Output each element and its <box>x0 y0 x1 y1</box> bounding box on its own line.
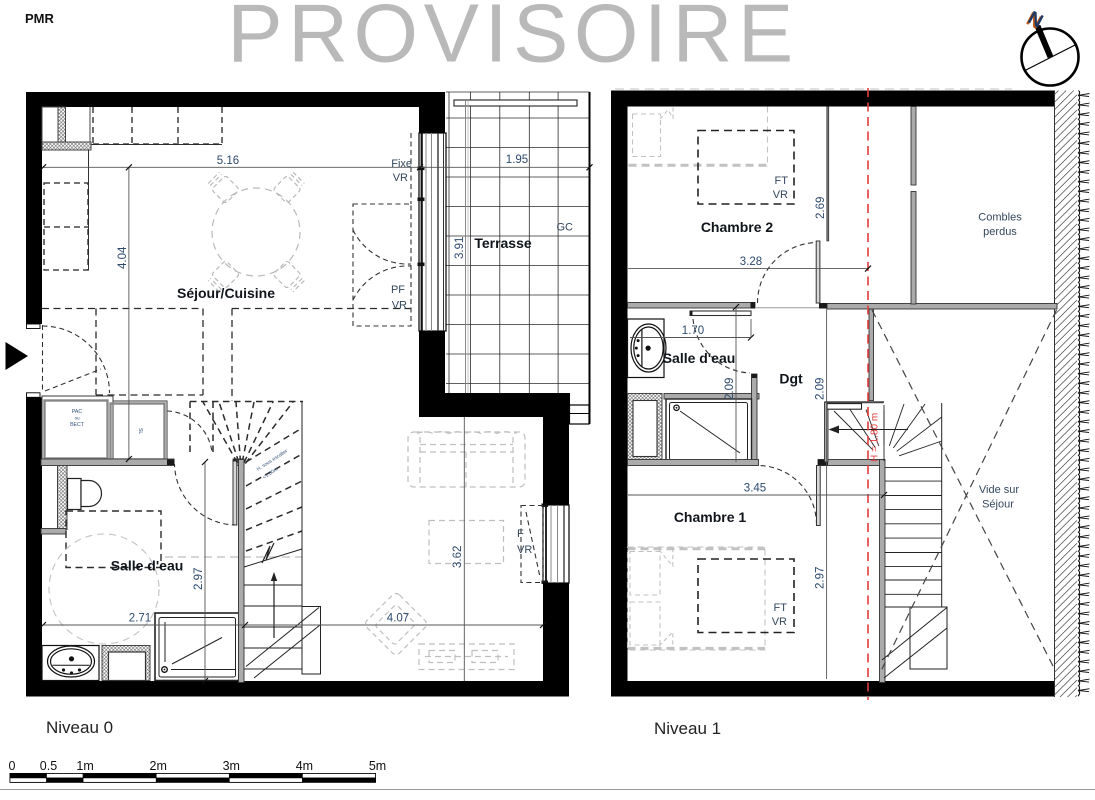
svg-text:2.09: 2.09 <box>815 378 827 400</box>
svg-text:VR: VR <box>392 300 407 312</box>
svg-text:Vide sur: Vide sur <box>979 484 1019 496</box>
svg-text:3.91: 3.91 <box>454 237 466 259</box>
svg-text:2.97: 2.97 <box>815 567 827 589</box>
svg-text:Chambre 1: Chambre 1 <box>674 509 747 525</box>
svg-text:BECT: BECT <box>70 422 85 428</box>
svg-text:2.09: 2.09 <box>724 378 736 400</box>
svg-text:Chambre 2: Chambre 2 <box>701 219 774 235</box>
svg-text:4m: 4m <box>296 759 313 773</box>
svg-text:Salle d'eau: Salle d'eau <box>111 558 184 574</box>
svg-text:PAC: PAC <box>72 409 83 415</box>
svg-text:1.95: 1.95 <box>506 154 528 166</box>
svg-text:PROVISOIRE: PROVISOIRE <box>227 0 799 80</box>
svg-text:Combles: Combles <box>978 212 1022 224</box>
svg-text:1.70: 1.70 <box>682 325 704 337</box>
svg-text:2.97: 2.97 <box>193 568 205 590</box>
svg-text:4.07: 4.07 <box>387 613 409 625</box>
svg-text:FT: FT <box>775 175 789 187</box>
svg-text:GC: GC <box>557 222 574 234</box>
svg-text:Terrasse: Terrasse <box>474 235 532 251</box>
svg-text:SL: SL <box>137 428 143 434</box>
svg-text:VR: VR <box>773 189 788 201</box>
svg-text:Dgt: Dgt <box>779 371 803 387</box>
svg-text:F: F <box>517 528 524 540</box>
svg-text:3m: 3m <box>223 759 240 773</box>
svg-text:Séjour: Séjour <box>982 499 1014 511</box>
svg-text:Séjour/Cuisine: Séjour/Cuisine <box>177 285 275 301</box>
svg-text:PF: PF <box>391 284 405 296</box>
svg-text:perdus: perdus <box>983 226 1017 238</box>
svg-text:ou: ou <box>74 416 80 421</box>
svg-text:0: 0 <box>9 759 16 773</box>
svg-text:FT: FT <box>774 602 788 614</box>
svg-text:PMR: PMR <box>25 11 55 26</box>
svg-text:5m: 5m <box>369 759 386 773</box>
svg-text:VR: VR <box>393 172 408 184</box>
svg-text:1m: 1m <box>76 759 93 773</box>
svg-text:0.5: 0.5 <box>40 759 57 773</box>
svg-text:2.71: 2.71 <box>129 613 151 625</box>
svg-text:4.04: 4.04 <box>117 246 129 269</box>
svg-text:VR: VR <box>772 616 787 628</box>
svg-text:Niveau 1: Niveau 1 <box>654 719 721 738</box>
svg-text:3.28: 3.28 <box>740 256 762 268</box>
svg-text:2.69: 2.69 <box>815 197 827 219</box>
svg-text:Niveau 0: Niveau 0 <box>46 718 113 737</box>
svg-text:VR: VR <box>517 544 532 556</box>
svg-text:Salle d'eau: Salle d'eau <box>663 350 736 366</box>
svg-text:3.45: 3.45 <box>744 483 766 495</box>
svg-text:3.62: 3.62 <box>452 546 464 568</box>
svg-text:Fixe: Fixe <box>391 158 412 170</box>
svg-text:5.16: 5.16 <box>217 155 239 167</box>
svg-text:2m: 2m <box>150 759 167 773</box>
svg-text:H = 1.80 m: H = 1.80 m <box>870 413 881 462</box>
